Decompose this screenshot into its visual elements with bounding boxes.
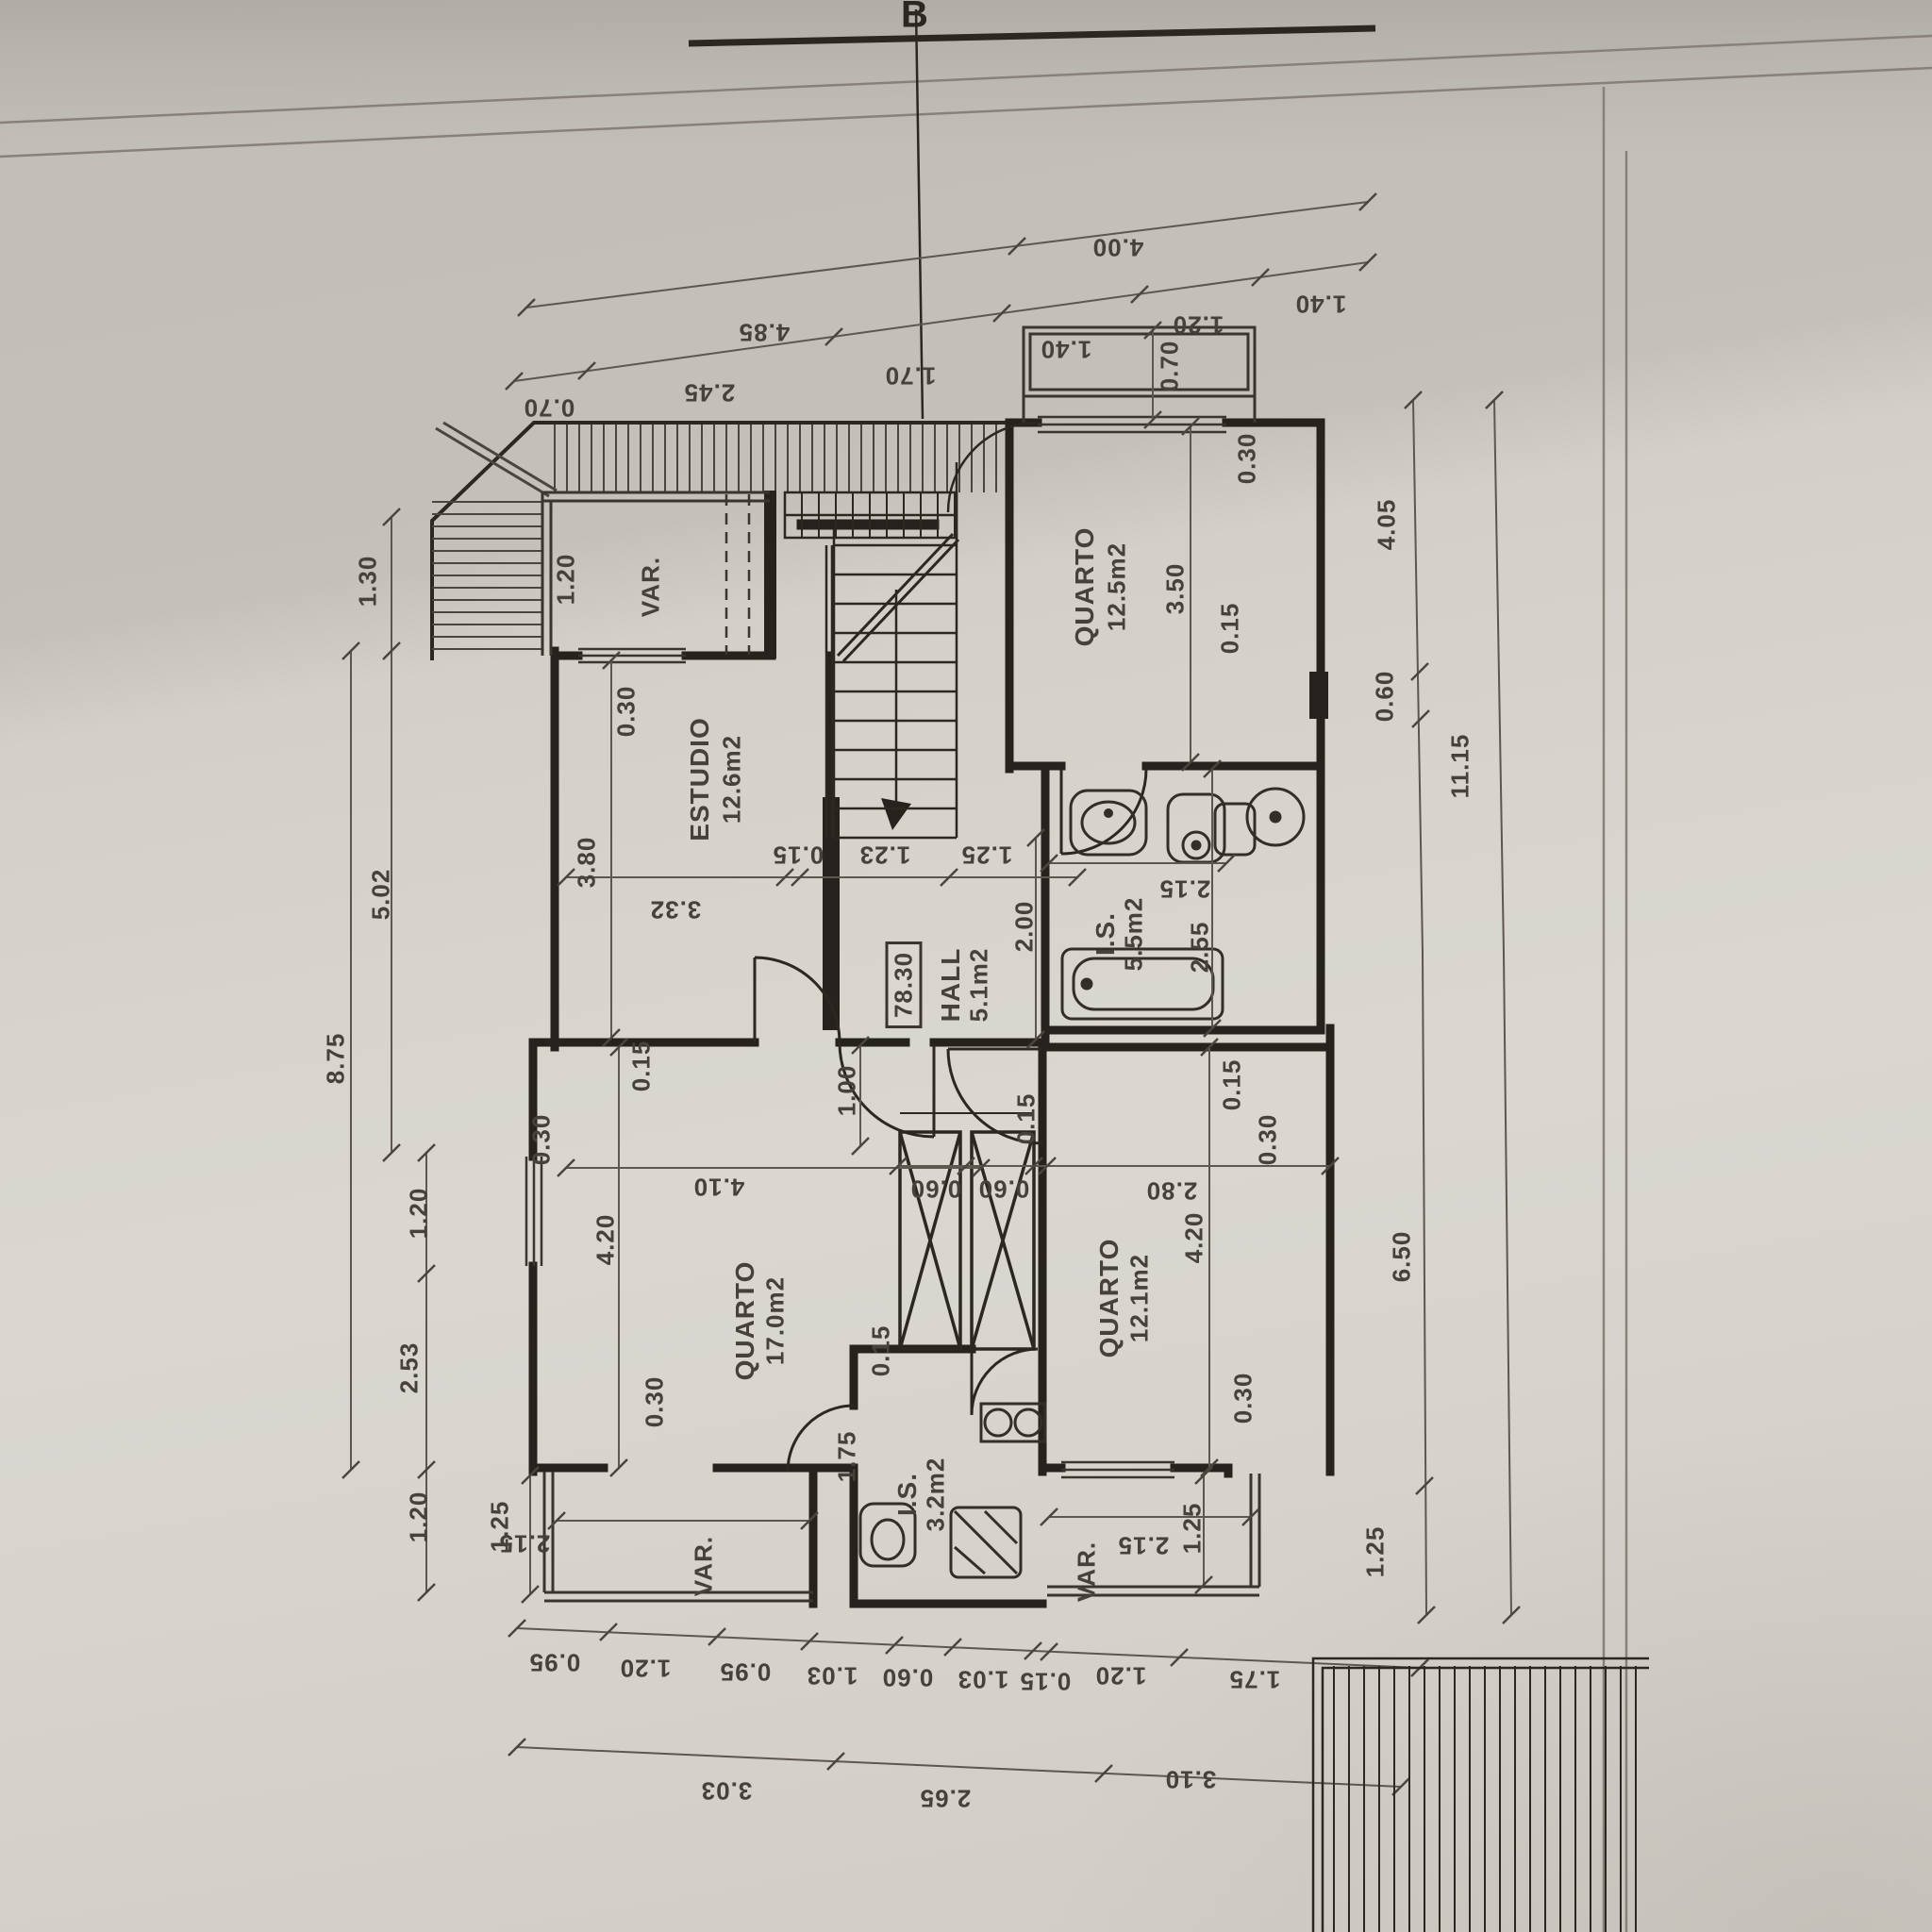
dim-label: 0.15 (627, 1041, 657, 1092)
dim-label: 3.50 (1161, 563, 1191, 615)
level-marker: 78.30 (886, 941, 923, 1028)
dim-label: 0.15 (1218, 1059, 1247, 1111)
balcony-label: VAR. (1073, 1541, 1102, 1602)
room-area: 5.5m2 (1120, 897, 1149, 972)
room-label: HALL (936, 948, 966, 1023)
dim-label: 1.25 (1361, 1526, 1391, 1578)
dim-label: 0.60 (882, 1663, 934, 1692)
dim-label: 2.00 (1010, 901, 1040, 953)
room-area: 12.1m2 (1125, 1254, 1155, 1342)
dim-label: 4.85 (739, 318, 791, 347)
dim-label: 2.55 (1186, 922, 1215, 974)
dim-label: 2.53 (395, 1342, 425, 1394)
dim-label: 0.15 (867, 1325, 896, 1377)
dim-label: 1.00 (833, 1065, 862, 1117)
dim-label: 1.20 (1173, 310, 1224, 340)
dim-label: 1.20 (1095, 1661, 1147, 1690)
dim-label: 4.10 (693, 1173, 745, 1202)
dim-label: 1.75 (833, 1431, 862, 1483)
dim-label: 1.25 (486, 1501, 515, 1553)
dim-label: 2.15 (1118, 1531, 1170, 1560)
plan-labels: 4.854.000.702.451.701.401.201.401.305.02… (0, 0, 1932, 1932)
dim-label: 1.70 (885, 361, 937, 391)
dim-label: 1.20 (552, 554, 581, 606)
dim-label: 0.30 (1233, 433, 1262, 485)
room-label: I.S. (1091, 912, 1121, 956)
sheet-letter: B (901, 0, 929, 37)
dim-label: 0.15 (773, 841, 824, 870)
dim-label: 0.95 (529, 1648, 581, 1677)
dim-label: 1.75 (1229, 1665, 1281, 1694)
dim-label: 1.40 (1041, 335, 1092, 364)
dim-label: 6.50 (1388, 1231, 1417, 1283)
dim-label: 0.60 (978, 1174, 1030, 1204)
dim-label: 1.03 (807, 1661, 858, 1690)
dim-label: 3.10 (1165, 1765, 1217, 1794)
balcony-label: VAR. (637, 557, 666, 617)
dim-label: 0.70 (1156, 341, 1185, 392)
dim-label: 0.60 (1371, 671, 1400, 723)
room-label: QUARTO (730, 1261, 760, 1381)
dim-label: 8.75 (322, 1033, 351, 1085)
dim-label: 0.70 (524, 393, 575, 423)
dim-label: 5.02 (367, 869, 396, 921)
dim-label: 0.30 (641, 1376, 670, 1428)
dim-label: 3.03 (701, 1776, 753, 1806)
dim-label: 1.23 (859, 841, 911, 870)
dim-label: 0.30 (1254, 1114, 1283, 1166)
dim-label: 0.30 (612, 686, 641, 738)
dim-label: 0.30 (1229, 1373, 1258, 1424)
dim-label: 4.20 (591, 1214, 621, 1266)
balcony-label: VAR. (690, 1536, 719, 1596)
floor-plan-photo: 4.854.000.702.451.701.401.201.401.305.02… (0, 0, 1932, 1932)
room-area: 5.1m2 (965, 948, 994, 1023)
room-label: ESTUDIO (685, 717, 715, 841)
dim-label: 0.95 (720, 1657, 772, 1687)
dim-label: 0.15 (1012, 1093, 1041, 1145)
dim-label: 1.03 (958, 1665, 1009, 1694)
dim-label: 4.20 (1180, 1212, 1209, 1264)
room-area: 17.0m2 (761, 1276, 791, 1365)
room-area: 12.6m2 (718, 735, 747, 824)
dim-label: 0.60 (910, 1174, 962, 1204)
room-label: QUARTO (1094, 1239, 1124, 1358)
dim-label: 3.32 (650, 895, 702, 924)
dim-label: 2.80 (1146, 1176, 1198, 1206)
dim-label: 0.15 (1020, 1667, 1072, 1696)
dim-label: 1.20 (405, 1491, 434, 1543)
dim-label: 1.20 (405, 1188, 434, 1240)
dim-label: 2.65 (920, 1784, 972, 1813)
dim-label: 1.20 (620, 1654, 672, 1683)
room-label: QUARTO (1070, 527, 1100, 647)
dim-label: 0.30 (527, 1114, 557, 1166)
dim-label: 11.15 (1446, 734, 1475, 799)
dim-label: 1.30 (354, 556, 383, 608)
room-area: 12.5m2 (1103, 542, 1132, 631)
dim-label: 3.80 (573, 837, 602, 889)
room-label: I.S. (892, 1473, 923, 1516)
dim-label: 4.05 (1373, 499, 1402, 551)
dim-label: 2.45 (684, 378, 736, 408)
dim-label: 1.25 (1178, 1503, 1207, 1555)
dim-label: 2.15 (1159, 874, 1211, 904)
dim-label: 1.40 (1295, 290, 1347, 319)
dim-label: 1.25 (961, 841, 1013, 870)
dim-label: 0.15 (1216, 603, 1245, 655)
dim-label: 4.00 (1092, 233, 1144, 262)
room-area: 3.2m2 (922, 1457, 951, 1532)
